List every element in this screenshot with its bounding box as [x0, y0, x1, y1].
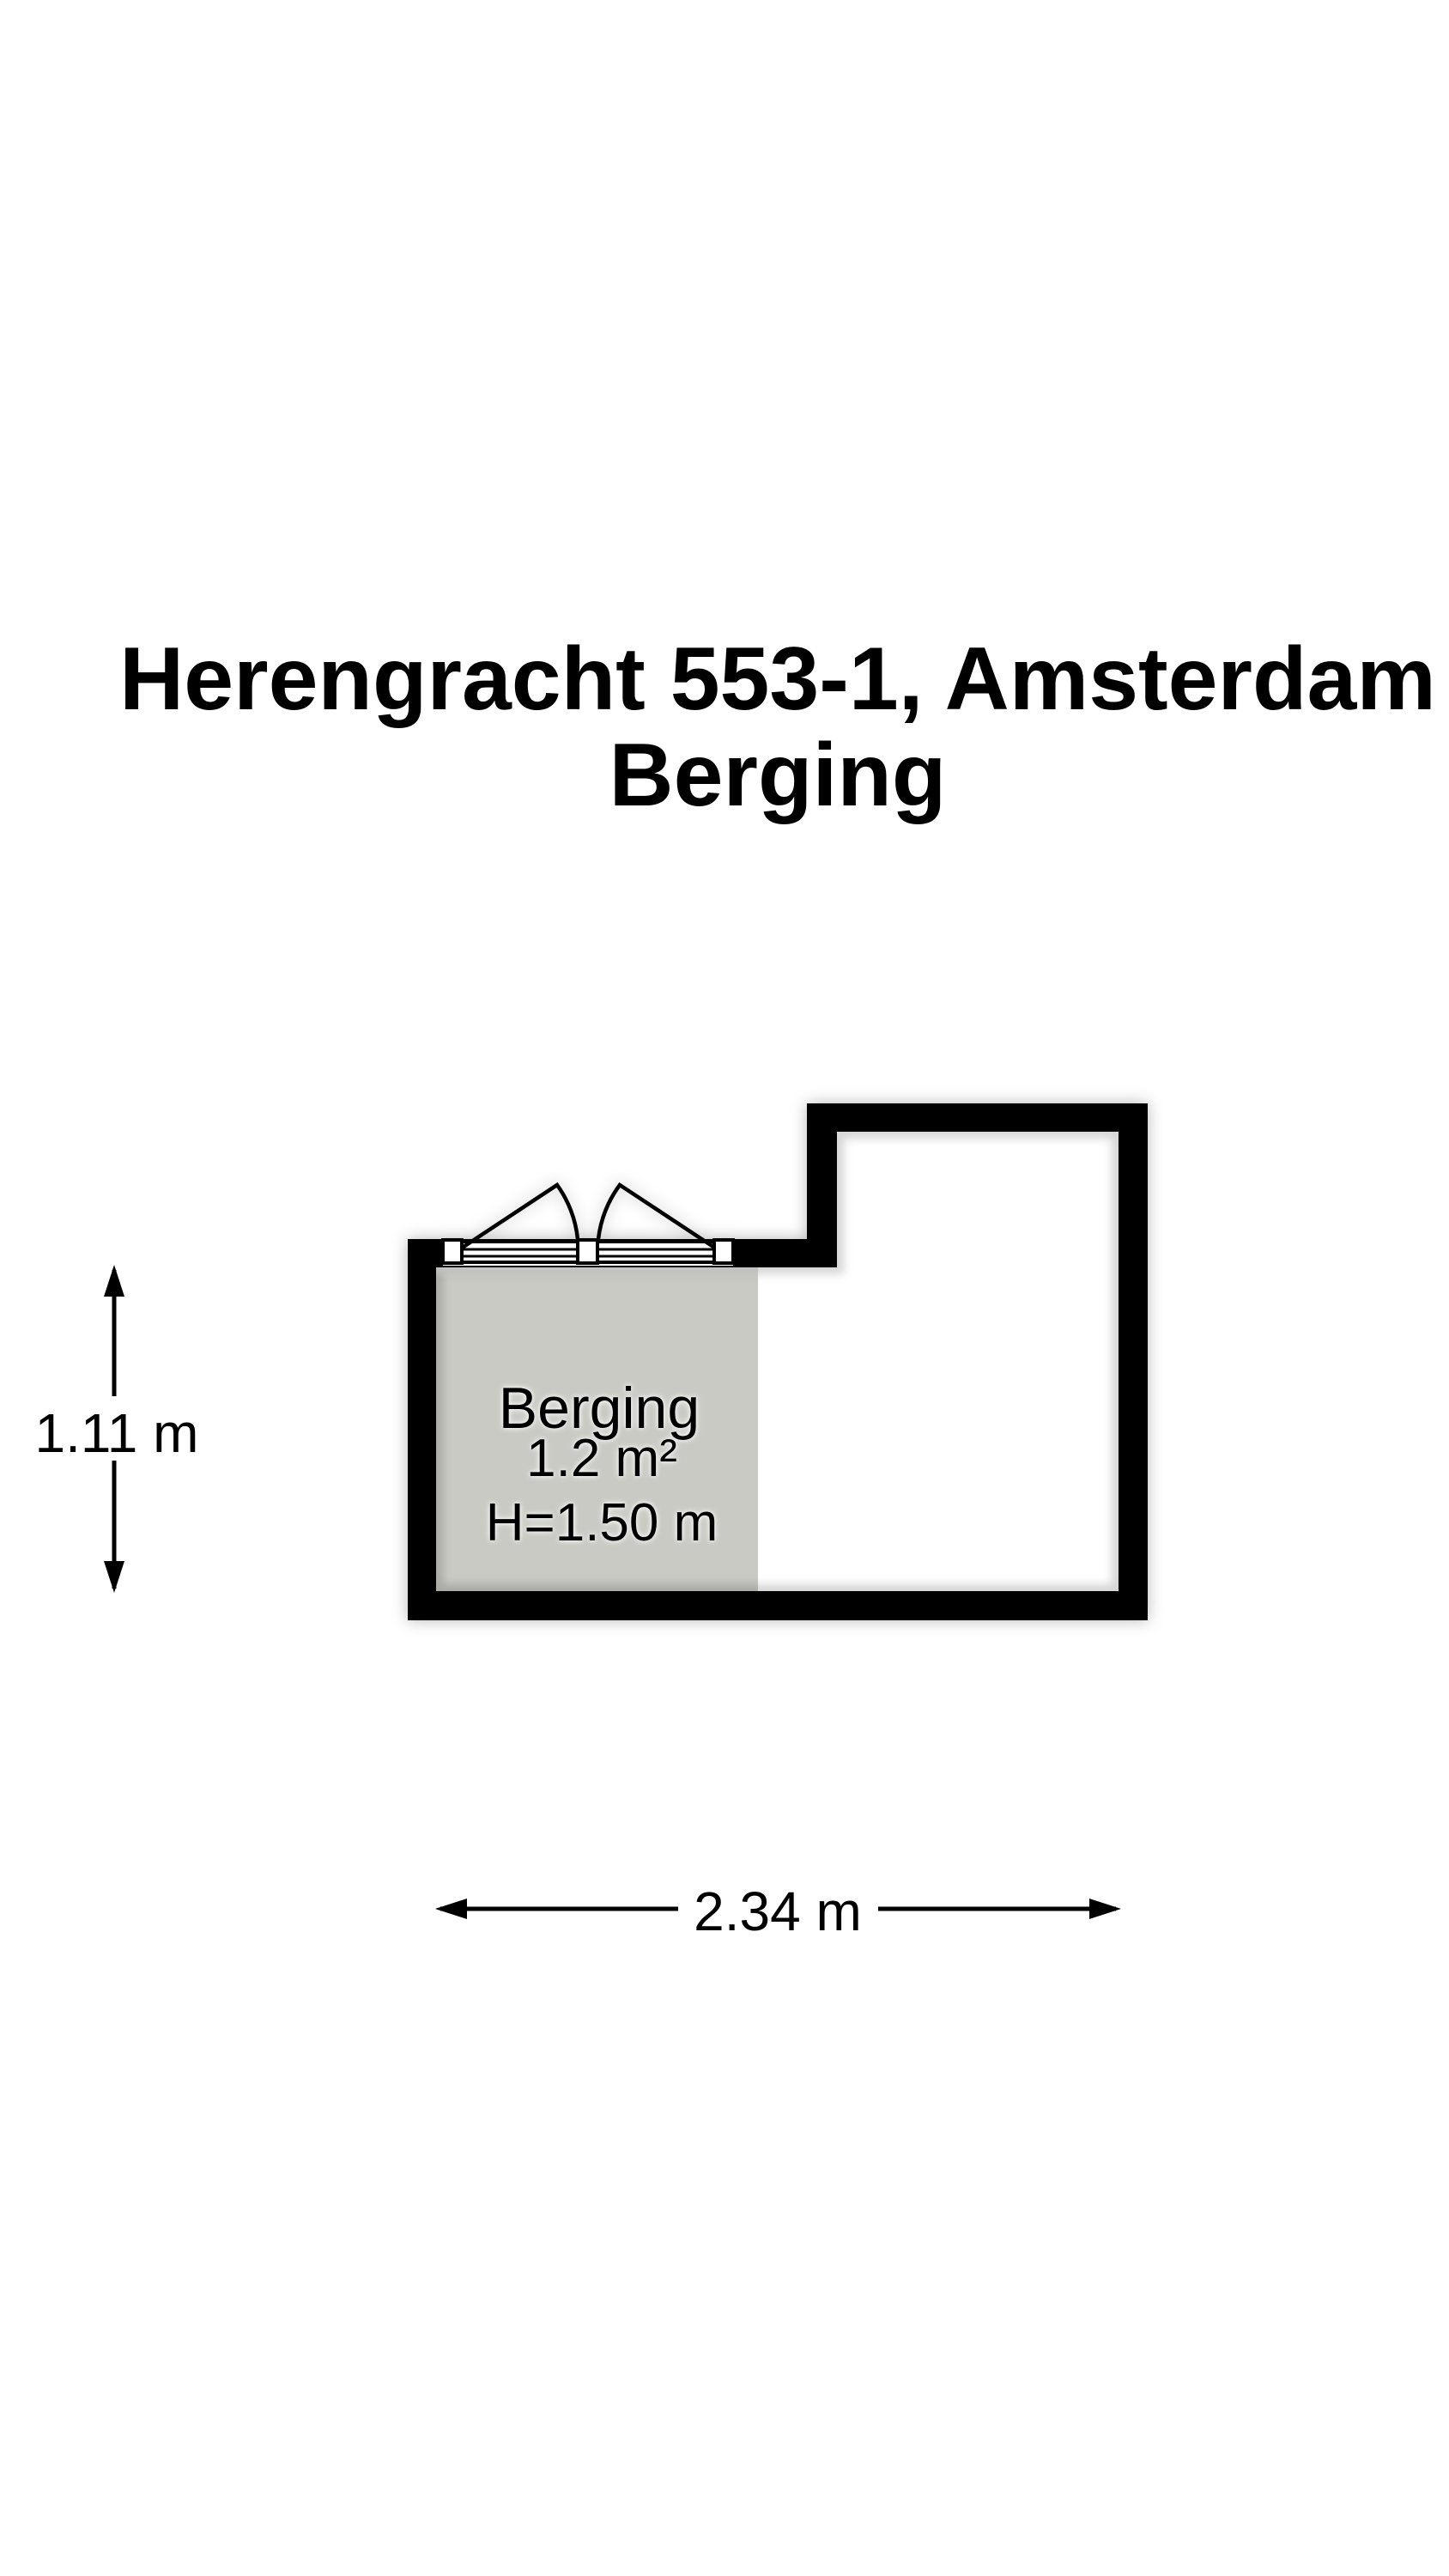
door-jamb-center	[578, 1240, 597, 1263]
door-swing-right	[598, 1185, 713, 1247]
double-door	[443, 1185, 733, 1266]
door-jamb-right	[714, 1240, 733, 1263]
vertical-dimension-label: 1.11 m	[30, 1406, 204, 1461]
door-leaf-left	[461, 1242, 579, 1262]
room-ceiling-height-label: H=1.50 m	[486, 1497, 718, 1550]
door-leaf-right	[597, 1242, 715, 1262]
floorplan-page: Herengracht 553-1, Amsterdam Berging	[0, 0, 1449, 2576]
room-area-label: 1.2 m²	[526, 1432, 677, 1485]
door-jamb-left	[443, 1240, 462, 1263]
floorplan-drawing	[0, 0, 1449, 2576]
door-swing-left	[464, 1185, 578, 1247]
horizontal-dimension-label: 2.34 m	[688, 1884, 867, 1939]
